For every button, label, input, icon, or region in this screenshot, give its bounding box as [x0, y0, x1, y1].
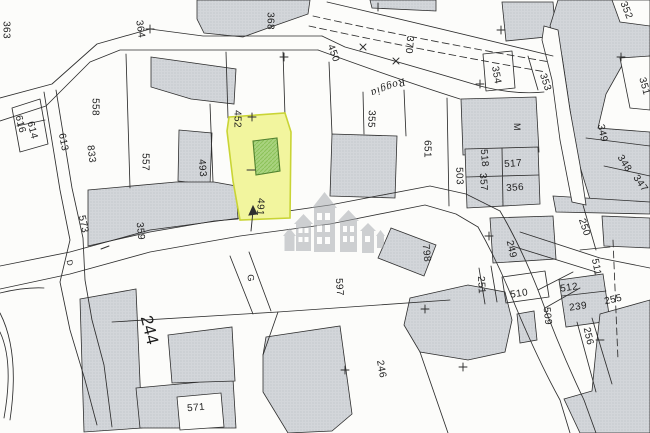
building [602, 216, 650, 248]
building [80, 289, 142, 432]
cadastral-map: 363364368450370Roggia3543533523513493483… [0, 0, 650, 433]
parcel-label-452: 452 [232, 110, 243, 128]
parcel-label-509: 509 [541, 307, 554, 326]
parcel-label-363: 363 [1, 21, 12, 39]
parcel-label-355: 355 [365, 110, 377, 128]
parcel-label-571: 571 [187, 402, 206, 415]
parcel-label-493: 493 [196, 159, 208, 178]
parcel-label-833: 833 [84, 145, 97, 164]
parcel-label-597: 597 [333, 278, 345, 297]
parcel-label-558: 558 [90, 98, 101, 116]
building [168, 327, 235, 383]
parcel-label-503: 503 [453, 167, 465, 185]
building [330, 134, 397, 198]
parcel-label-518: 518 [478, 149, 491, 168]
parcel-label-651: 651 [422, 140, 433, 158]
parcel-label-370: 370 [403, 36, 416, 55]
parcel-label-359: 359 [134, 222, 147, 241]
parcel-label-356: 356 [506, 182, 525, 194]
parcel-label-368: 368 [265, 12, 276, 30]
parcel-label-798: 798 [420, 244, 433, 263]
parcel-label-557: 557 [140, 153, 151, 171]
parcel-label-251: 251 [475, 276, 487, 294]
parcel-label-357: 357 [477, 173, 490, 192]
parcel-label-517: 517 [504, 158, 523, 170]
highlight-building-shape[interactable] [253, 138, 280, 175]
building [178, 130, 212, 185]
parcel-label-G: G [246, 274, 257, 282]
building [461, 97, 539, 155]
parcel-label-491: 491 [254, 198, 266, 216]
parcel-label-M: M [512, 123, 522, 131]
